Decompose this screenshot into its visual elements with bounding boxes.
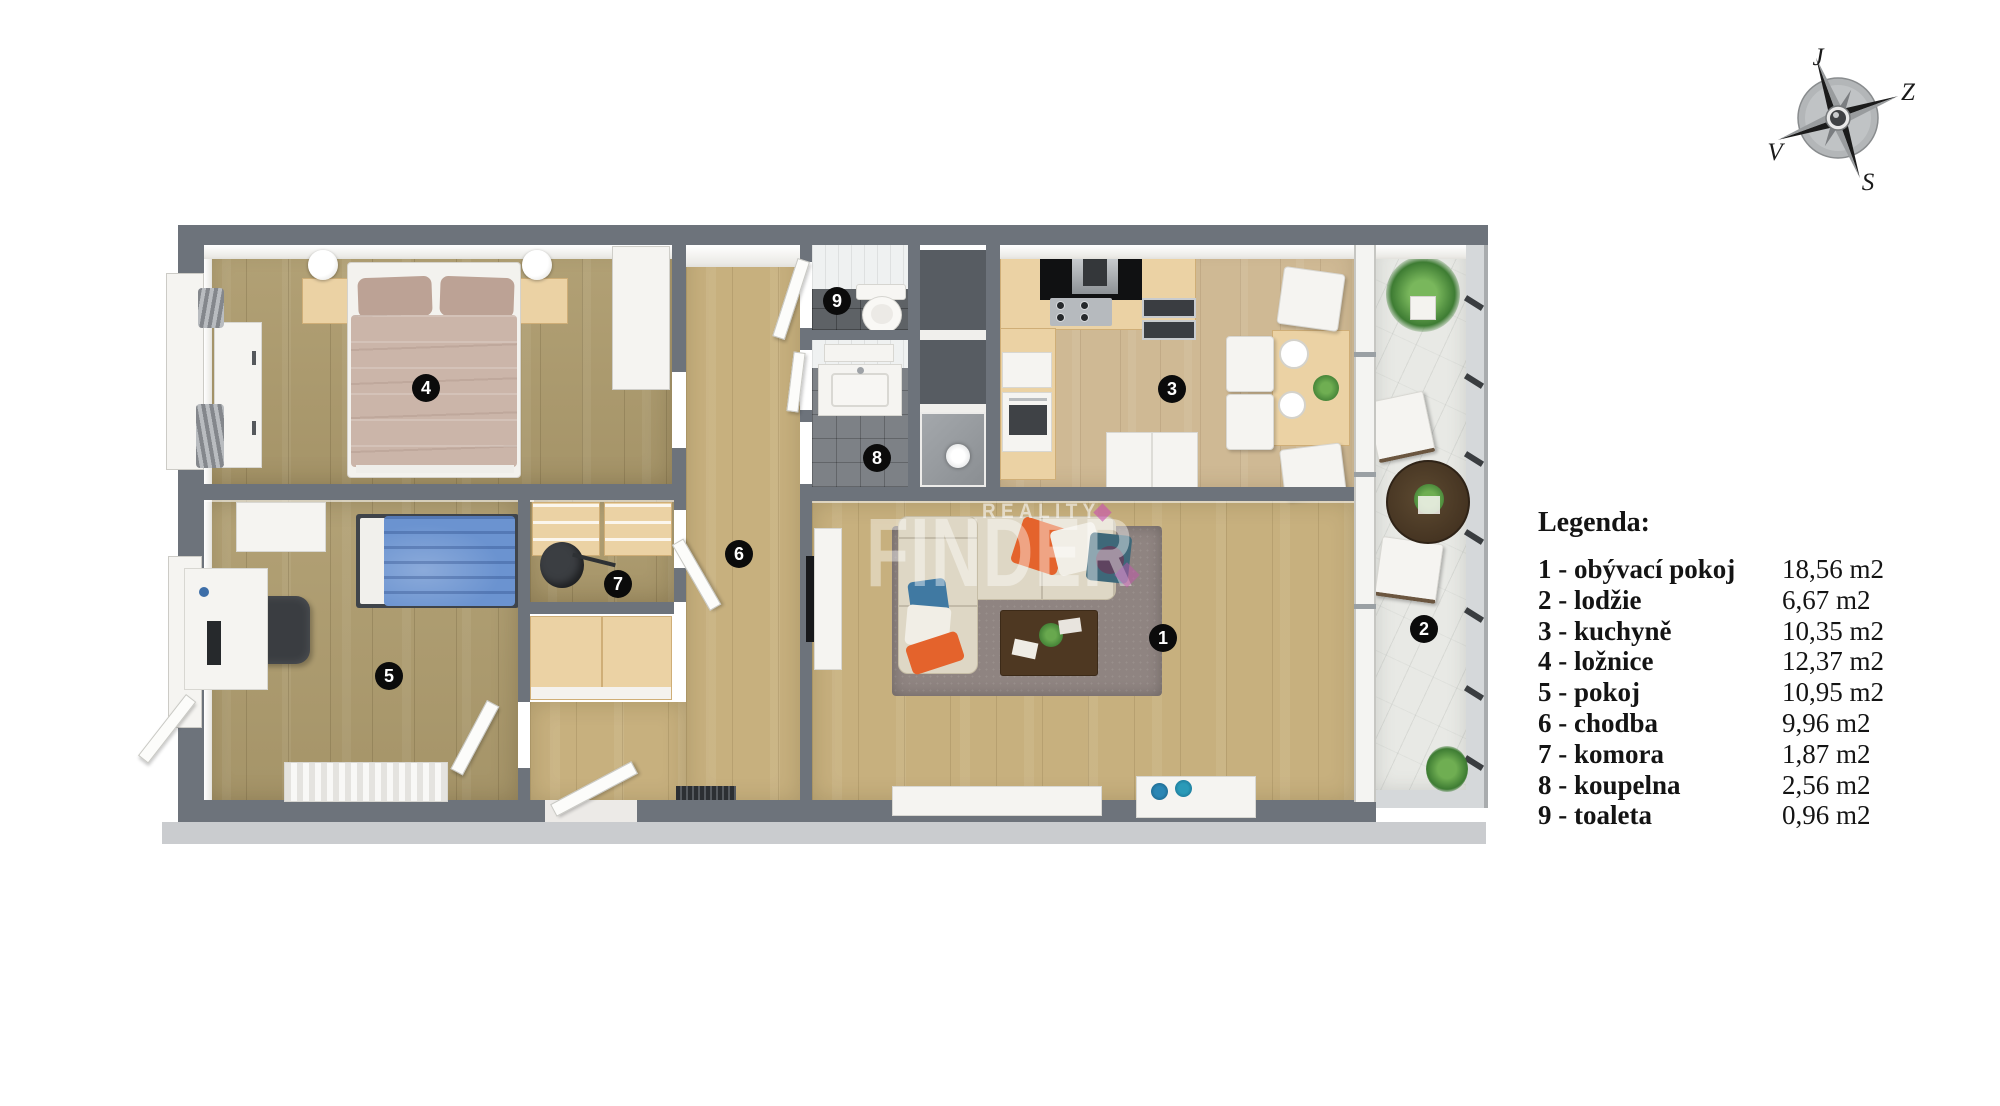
compass-letter-east: V bbox=[1767, 139, 1785, 166]
room-badge-komora: 7 bbox=[604, 570, 632, 598]
plate-icon bbox=[1279, 339, 1309, 369]
burner-icon bbox=[1056, 301, 1065, 310]
wall-face bbox=[204, 245, 672, 259]
legend-label: 4 - ložnice bbox=[1538, 646, 1782, 677]
compass-letter-south: J bbox=[1812, 44, 1825, 71]
wardrobe-chodba bbox=[530, 616, 672, 700]
nightstand bbox=[520, 278, 568, 324]
table-plant-icon bbox=[1313, 375, 1339, 401]
balcony-chair bbox=[1374, 536, 1444, 604]
wardrobe-loznice bbox=[612, 246, 670, 390]
balcony-table bbox=[1386, 460, 1470, 544]
wall-komora-east bbox=[674, 568, 686, 602]
built-in-microwave bbox=[1142, 320, 1196, 340]
burner-plate bbox=[1050, 298, 1112, 326]
built-in-oven bbox=[1142, 298, 1196, 318]
wall-komora-north bbox=[518, 484, 686, 500]
faucet-icon bbox=[857, 367, 864, 374]
legend-area: 9,96 m2 bbox=[1782, 708, 1871, 739]
legend-row: 2 - lodžie6,67 m2 bbox=[1538, 585, 1958, 616]
window-mullion bbox=[1354, 472, 1376, 477]
legend-area: 10,35 m2 bbox=[1782, 616, 1884, 647]
balcony-railing-south bbox=[1376, 790, 1468, 808]
railing-edge bbox=[1484, 245, 1488, 808]
legend-label: 8 - koupelna bbox=[1538, 770, 1782, 801]
legend-rows: 1 - obývací pokoj18,56 m2 2 - lodžie6,67… bbox=[1538, 554, 1958, 831]
wall-pokoj-east bbox=[518, 768, 530, 800]
desk-item bbox=[199, 587, 209, 597]
utility-shaft bbox=[920, 250, 986, 330]
wall-chodba-east bbox=[800, 410, 812, 422]
window-mullion bbox=[1354, 352, 1376, 357]
fridge bbox=[1106, 432, 1198, 488]
toaleta-wall-tiles bbox=[812, 245, 908, 289]
burner-icon bbox=[1080, 301, 1089, 310]
balcony-plant-large bbox=[1386, 256, 1460, 332]
wall-face bbox=[1376, 245, 1466, 259]
dining-table bbox=[1272, 330, 1350, 446]
sideboard bbox=[892, 786, 1102, 816]
balcony-railing bbox=[1466, 245, 1486, 808]
curtain bbox=[198, 288, 224, 328]
komora-shelf bbox=[604, 502, 672, 556]
oven-lower bbox=[1002, 392, 1052, 452]
legend-area: 1,87 m2 bbox=[1782, 739, 1871, 770]
legend-area: 6,67 m2 bbox=[1782, 585, 1871, 616]
lamp-icon bbox=[522, 250, 552, 280]
wall-chodba-east bbox=[800, 484, 812, 802]
bathroom-shelf bbox=[824, 344, 894, 362]
oven-window bbox=[1009, 405, 1047, 435]
room-badge-toaleta: 9 bbox=[823, 287, 851, 315]
sink-vanity bbox=[818, 364, 902, 416]
pillow bbox=[439, 276, 514, 319]
plate-icon bbox=[1278, 391, 1306, 419]
bowl-icon bbox=[1151, 783, 1168, 800]
shower-head-icon bbox=[946, 444, 970, 468]
legend-area: 2,56 m2 bbox=[1782, 770, 1871, 801]
legend-area: 10,95 m2 bbox=[1782, 677, 1884, 708]
legend: Legenda: 1 - obývací pokoj18,56 m2 2 - l… bbox=[1538, 506, 1958, 831]
legend-row: 3 - kuchyně10,35 m2 bbox=[1538, 616, 1958, 647]
nightstand bbox=[302, 278, 350, 324]
legend-row: 9 - toaleta0,96 m2 bbox=[1538, 800, 1958, 831]
legend-label: 5 - pokoj bbox=[1538, 677, 1782, 708]
double-bed bbox=[347, 262, 521, 478]
bed-foot bbox=[356, 465, 514, 473]
balcony-window-wall bbox=[1354, 245, 1376, 802]
wall-face bbox=[204, 259, 212, 800]
hood-vent bbox=[1083, 258, 1107, 286]
wall-toaleta-koupelna bbox=[812, 330, 908, 340]
burner-icon bbox=[1080, 313, 1089, 322]
legend-row: 5 - pokoj10,95 m2 bbox=[1538, 677, 1958, 708]
pillow bbox=[357, 276, 432, 319]
wall-face bbox=[1000, 245, 1354, 259]
shaft-divider bbox=[920, 330, 986, 340]
magazine bbox=[1012, 639, 1039, 660]
coffee-table bbox=[1000, 610, 1098, 676]
shelf-slats bbox=[243, 529, 319, 547]
room-badge-chodba: 6 bbox=[725, 540, 753, 568]
toilet-bowl bbox=[862, 296, 902, 334]
legend-area: 0,96 m2 bbox=[1782, 800, 1871, 831]
room-badge-lodzie: 2 bbox=[1410, 615, 1438, 643]
wardrobe-front bbox=[531, 687, 671, 699]
legend-area: 12,37 m2 bbox=[1782, 646, 1884, 677]
legend-label: 9 - toaleta bbox=[1538, 800, 1782, 831]
shower bbox=[920, 412, 986, 487]
wall-pokoj-east bbox=[518, 500, 530, 702]
dresser-handle bbox=[252, 421, 256, 435]
legend-label: 6 - chodba bbox=[1538, 708, 1782, 739]
legend-label: 2 - lodžie bbox=[1538, 585, 1782, 616]
dining-chair bbox=[1226, 336, 1274, 392]
fridge-divider bbox=[1151, 433, 1153, 487]
shaft-divider bbox=[920, 404, 986, 412]
wall-koupelna-east bbox=[908, 245, 920, 497]
legend-label: 3 - kuchyně bbox=[1538, 616, 1782, 647]
window-mullion bbox=[1354, 604, 1376, 609]
legend-row: 6 - chodba9,96 m2 bbox=[1538, 708, 1958, 739]
burner-icon bbox=[1056, 313, 1065, 322]
curtain bbox=[196, 404, 224, 468]
wall-kuchyne-west bbox=[986, 225, 1000, 501]
outer-wall-top bbox=[178, 225, 1488, 245]
exterior-edge bbox=[162, 822, 1486, 844]
compass-letter-west: Z bbox=[1901, 79, 1916, 106]
compass-letter-north: S bbox=[1862, 169, 1875, 196]
legend-area: 18,56 m2 bbox=[1782, 554, 1884, 585]
legend-title: Legenda: bbox=[1538, 506, 1958, 540]
radiator bbox=[284, 762, 448, 802]
console-table bbox=[1136, 776, 1256, 818]
vacuum-cleaner bbox=[540, 542, 584, 588]
balcony-plant-small bbox=[1426, 746, 1468, 792]
legend-label: 1 - obývací pokoj bbox=[1538, 554, 1782, 585]
sink-basin bbox=[831, 373, 889, 407]
shelf-unit bbox=[236, 502, 326, 552]
lamp-icon bbox=[308, 250, 338, 280]
dishwasher bbox=[1002, 352, 1052, 388]
balcony-chair bbox=[1366, 391, 1436, 464]
monitor-icon bbox=[207, 621, 221, 665]
wall-chodba-east bbox=[800, 328, 812, 350]
room-badge-pokoj: 5 bbox=[375, 662, 403, 690]
single-bed bbox=[356, 514, 519, 608]
legend-row: 7 - komora1,87 m2 bbox=[1538, 739, 1958, 770]
dining-chair bbox=[1226, 394, 1274, 450]
wardrobe-divider bbox=[601, 617, 603, 687]
tv-stand bbox=[814, 528, 842, 670]
desk bbox=[184, 568, 268, 690]
toilet-seat bbox=[871, 304, 893, 324]
mattress bbox=[360, 518, 386, 604]
room-badge-obyvaci-pokoj: 1 bbox=[1149, 624, 1177, 652]
compass-rose-icon: J Z S V bbox=[1752, 26, 1932, 206]
magazine bbox=[1058, 618, 1082, 635]
room-badge-loznice: 4 bbox=[412, 374, 440, 402]
wall-komora-east bbox=[674, 500, 686, 510]
room-badge-kuchyne: 3 bbox=[1158, 375, 1186, 403]
tv-icon bbox=[806, 556, 814, 642]
utility-shaft bbox=[920, 340, 986, 404]
legend-row: 8 - koupelna2,56 m2 bbox=[1538, 770, 1958, 801]
wall-loznice-pokoj bbox=[204, 484, 534, 500]
wall-kuchyne-obyvaci bbox=[812, 487, 1366, 501]
wall-face bbox=[686, 245, 800, 267]
dining-chair bbox=[1276, 266, 1345, 332]
wall-loznice-chodba bbox=[672, 448, 686, 484]
bowl-icon bbox=[1175, 780, 1192, 797]
legend-row: 4 - ložnice12,37 m2 bbox=[1538, 646, 1958, 677]
floor-plan-page: 1 2 3 4 5 6 7 8 9 REALITY FINDER bbox=[0, 0, 2000, 1106]
oven-handle bbox=[1009, 398, 1047, 401]
pillow-round bbox=[1096, 546, 1124, 574]
dresser-handle bbox=[252, 351, 256, 365]
room-badge-koupelna: 8 bbox=[863, 444, 891, 472]
wall-komora-south bbox=[530, 602, 674, 614]
wall-loznice-chodba bbox=[672, 245, 686, 372]
blue-duvet bbox=[384, 516, 515, 606]
plant-pot bbox=[1410, 296, 1436, 320]
plant-pot bbox=[1418, 496, 1440, 514]
legend-row: 1 - obývací pokoj18,56 m2 bbox=[1538, 554, 1958, 585]
legend-label: 7 - komora bbox=[1538, 739, 1782, 770]
doormat-grill bbox=[676, 786, 736, 800]
